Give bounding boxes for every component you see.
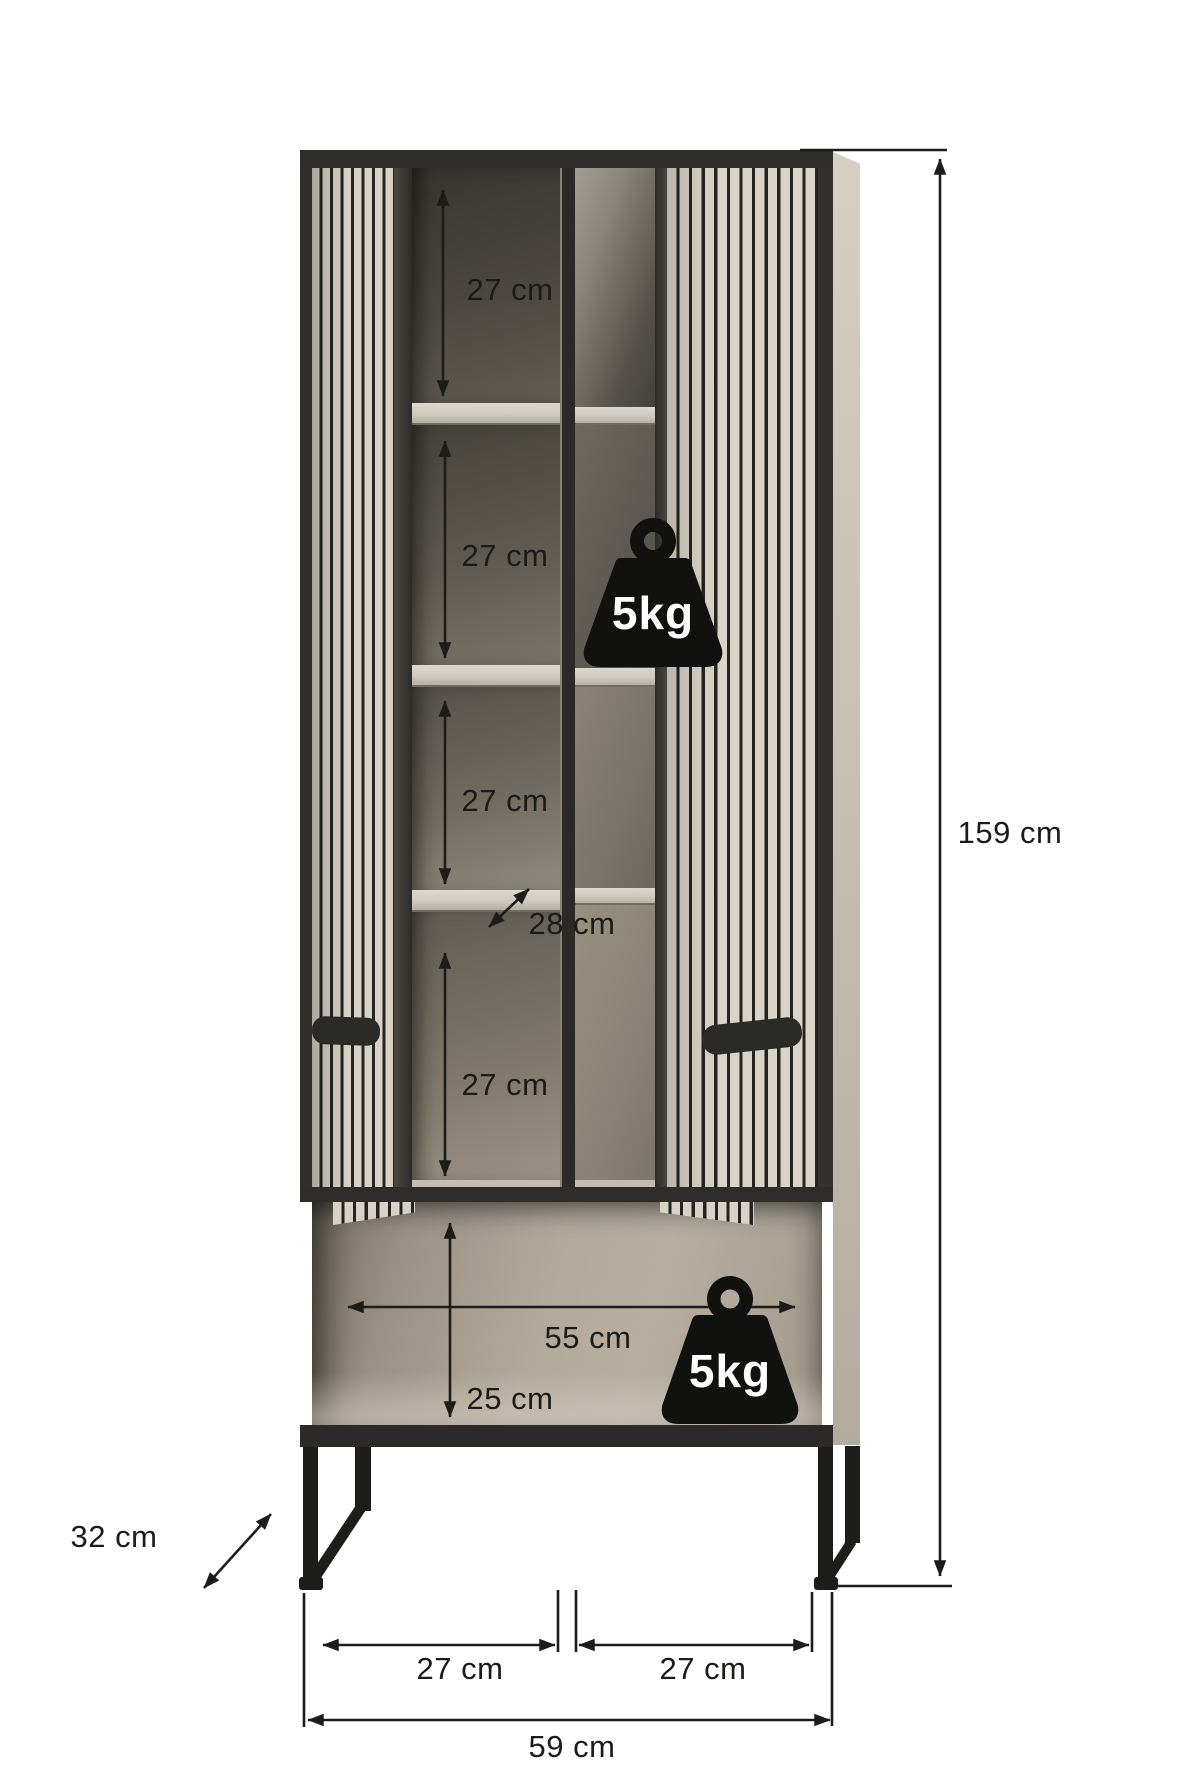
dim-open-height: 25 cm <box>467 1381 554 1417</box>
cabinet-right-frame <box>818 168 833 1187</box>
bottom-panel <box>300 1425 833 1447</box>
lower-frame-band <box>300 1187 833 1202</box>
cabinet-left-frame <box>300 168 312 1187</box>
compartment-4 <box>412 912 560 1180</box>
max-shelf-load-label: 5kg <box>612 586 694 640</box>
shelf <box>575 668 655 687</box>
dim-compartment-4: 27 cm <box>462 1067 549 1103</box>
left-door-edge <box>394 168 412 1187</box>
right-fluted-door <box>667 168 818 1187</box>
compartment-4-right <box>575 905 655 1180</box>
interior-left-column <box>412 168 560 1187</box>
dim-compartment-2: 27 cm <box>462 538 549 574</box>
furniture-dimension-diagram: 27 cm 27 cm 27 cm 28 cm 27 cm 55 cm 25 c… <box>0 0 1200 1792</box>
dim-total-height: 159 cm <box>958 815 1063 851</box>
compartment-1-right <box>575 168 655 407</box>
dim-base-depth: 32 cm <box>71 1519 158 1555</box>
dim-shelf-depth: 28 cm <box>529 906 616 942</box>
right-metal-leg <box>814 1446 860 1590</box>
right-door-edge <box>655 168 667 1187</box>
dim-left-door-width: 27 cm <box>417 1651 504 1687</box>
compartment-3-right <box>575 687 655 888</box>
left-metal-leg <box>299 1447 371 1590</box>
dim-right-door-width: 27 cm <box>660 1651 747 1687</box>
shelf <box>412 665 560 687</box>
interior-right-column <box>575 168 655 1187</box>
cabinet-floor-edge <box>412 1180 560 1187</box>
center-divider <box>560 168 575 1187</box>
shelf <box>412 403 560 425</box>
depth-arrow <box>204 1514 271 1588</box>
cabinet-top-panel <box>300 150 833 168</box>
cabinet-floor-edge <box>575 1180 655 1187</box>
dim-compartment-3: 27 cm <box>462 783 549 819</box>
dim-open-width: 55 cm <box>545 1320 632 1356</box>
shelf <box>575 407 655 425</box>
shelf <box>575 888 655 905</box>
max-base-load-label: 5kg <box>689 1344 771 1398</box>
dim-total-width: 59 cm <box>529 1729 616 1765</box>
cabinet-side-panel <box>833 152 860 1445</box>
left-fluted-door <box>312 168 394 1187</box>
dim-compartment-1: 27 cm <box>467 272 554 308</box>
